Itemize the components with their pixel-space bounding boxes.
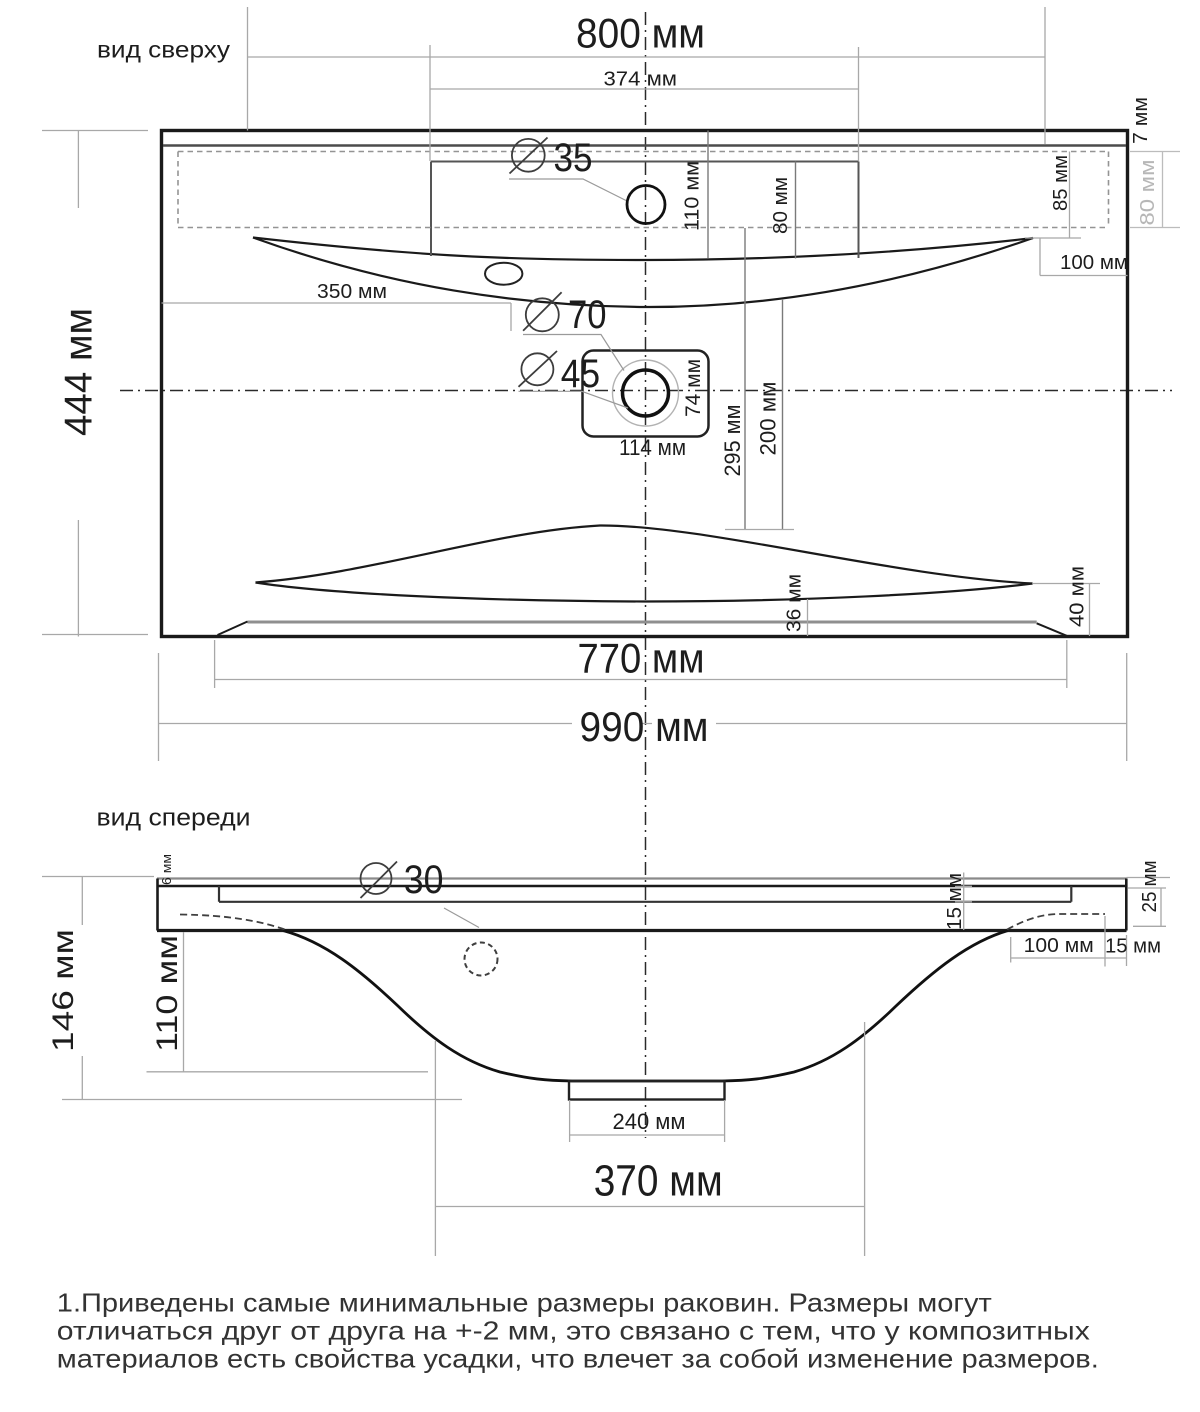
svg-text:1.Приведены самые минимальные: 1.Приведены самые минимальные размеры ра… <box>57 1288 992 1318</box>
svg-text:240 мм: 240 мм <box>613 1109 686 1134</box>
svg-text:110 мм: 110 мм <box>682 161 704 231</box>
svg-text:40 мм: 40 мм <box>1067 566 1089 627</box>
svg-text:70: 70 <box>568 293 607 337</box>
svg-text:444 мм: 444 мм <box>58 308 101 436</box>
svg-text:114 мм: 114 мм <box>619 435 686 460</box>
svg-text:6 мм: 6 мм <box>160 854 174 885</box>
svg-text:30: 30 <box>404 858 444 902</box>
svg-text:374 мм: 374 мм <box>604 68 678 91</box>
svg-text:85 мм: 85 мм <box>1050 155 1072 211</box>
svg-text:материалов есть свойства усадк: материалов есть свойства усадки, что вле… <box>57 1344 1099 1374</box>
svg-text:110 мм: 110 мм <box>151 935 184 1052</box>
svg-text:15 мм: 15 мм <box>1105 935 1161 958</box>
svg-text:80 мм: 80 мм <box>1136 160 1159 226</box>
svg-text:7 мм: 7 мм <box>1130 97 1152 144</box>
svg-text:100 мм: 100 мм <box>1024 934 1094 957</box>
svg-text:990 мм: 990 мм <box>580 703 709 750</box>
svg-text:80 мм: 80 мм <box>770 177 792 234</box>
svg-text:146 мм: 146 мм <box>47 929 80 1052</box>
svg-text:350 мм: 350 мм <box>317 280 387 303</box>
svg-text:74 мм: 74 мм <box>682 359 705 417</box>
svg-text:вид сверху: вид сверху <box>97 37 231 63</box>
svg-text:100 мм: 100 мм <box>1060 251 1128 274</box>
svg-text:770 мм: 770 мм <box>578 635 705 682</box>
svg-text:отличаться друг от друга на +-: отличаться друг от друга на +-2 мм, это … <box>57 1316 1090 1346</box>
svg-text:295 мм: 295 мм <box>720 405 745 477</box>
svg-text:35: 35 <box>554 136 593 180</box>
svg-text:800 мм: 800 мм <box>576 10 705 57</box>
svg-text:200 мм: 200 мм <box>756 382 781 456</box>
svg-text:370 мм: 370 мм <box>594 1157 723 1206</box>
svg-text:25 мм: 25 мм <box>1139 861 1161 913</box>
svg-text:45: 45 <box>561 352 600 396</box>
svg-text:36 мм: 36 мм <box>784 574 806 632</box>
svg-text:15 мм: 15 мм <box>944 873 966 930</box>
svg-text:вид спереди: вид спереди <box>97 805 251 832</box>
